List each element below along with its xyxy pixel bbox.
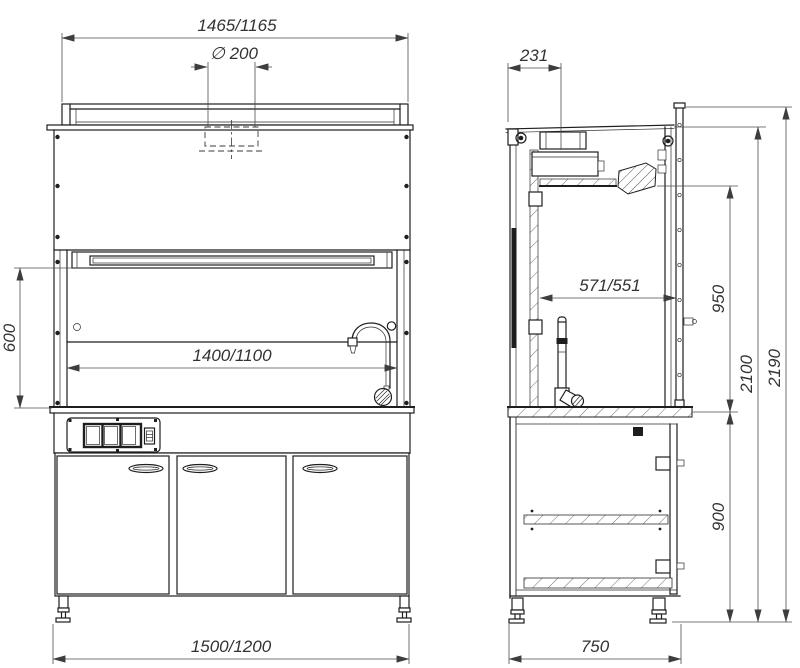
back-wall	[510, 129, 542, 598]
front-frame	[658, 127, 697, 408]
door-hinge	[656, 560, 684, 573]
door-catch	[633, 427, 643, 436]
cabinet-side	[510, 417, 684, 598]
dim-label-opening-height: 600	[0, 323, 19, 352]
worktop-side	[508, 407, 692, 417]
dimension-chamber-height: 950	[709, 186, 730, 412]
legs-front	[56, 596, 411, 622]
duct-collar-side	[540, 132, 586, 149]
dimension-front-width-inner: 1400/1100	[67, 346, 397, 368]
fume-hood-technical-drawing: 1465/1165 ∅ 200 600 1400/1100	[0, 0, 800, 668]
dim-label-front-width-bottom: 1500/1200	[191, 637, 272, 656]
cabinet-bottom	[510, 578, 680, 596]
technical-drawing-page: 1465/1165 ∅ 200 600 1400/1100	[0, 0, 800, 668]
dimension-opening-height: 600	[0, 268, 90, 408]
glass-baffle	[618, 163, 656, 194]
socket-block	[84, 424, 141, 447]
back-baffle	[530, 150, 538, 408]
cabinet-front	[55, 453, 409, 596]
dimension-under-bench-height: 900	[709, 412, 730, 622]
ceiling-baffle	[540, 179, 616, 186]
faucet-side	[555, 317, 584, 408]
sash-panel	[674, 103, 685, 410]
dim-label-front-width-top: 1465/1165	[197, 16, 277, 35]
side-view: 231 571/551 950 900 2100 2190	[506, 46, 792, 664]
roof-tray	[47, 104, 413, 130]
dimension-depth-inner: 571/551	[540, 276, 676, 298]
dimension-total-height: 2190	[765, 107, 786, 622]
front-view: 1465/1165 ∅ 200 600 1400/1100	[0, 16, 414, 664]
dim-label-total-height: 2190	[765, 349, 784, 388]
screw-dots-left	[55, 135, 59, 405]
screw-dots-right	[404, 135, 408, 405]
dim-label-duct-offset: 231	[519, 46, 548, 65]
dimension-depth-bottom: 750	[509, 624, 681, 664]
faucet-front	[348, 322, 396, 406]
control-panel	[67, 418, 160, 452]
switch	[145, 428, 155, 444]
exhaust-box	[532, 152, 598, 176]
dim-label-under-bench-height: 900	[709, 502, 728, 531]
dimension-body-height: 2100	[737, 127, 758, 622]
cabinet-shelf	[524, 510, 668, 531]
dim-label-duct-diameter: ∅ 200	[210, 44, 258, 63]
dim-label-front-width-inner: 1400/1100	[192, 346, 272, 365]
dim-label-depth-inner: 571/551	[579, 276, 640, 295]
door-hinge	[656, 457, 684, 470]
dim-label-chamber-height: 950	[709, 284, 728, 313]
dimension-duct-diameter: ∅ 200	[191, 44, 272, 159]
dim-label-depth-bottom: 750	[581, 637, 610, 656]
dimension-front-width-bottom: 1500/1200	[53, 624, 409, 664]
legs-side	[509, 598, 666, 623]
dim-label-body-height: 2100	[737, 355, 756, 394]
